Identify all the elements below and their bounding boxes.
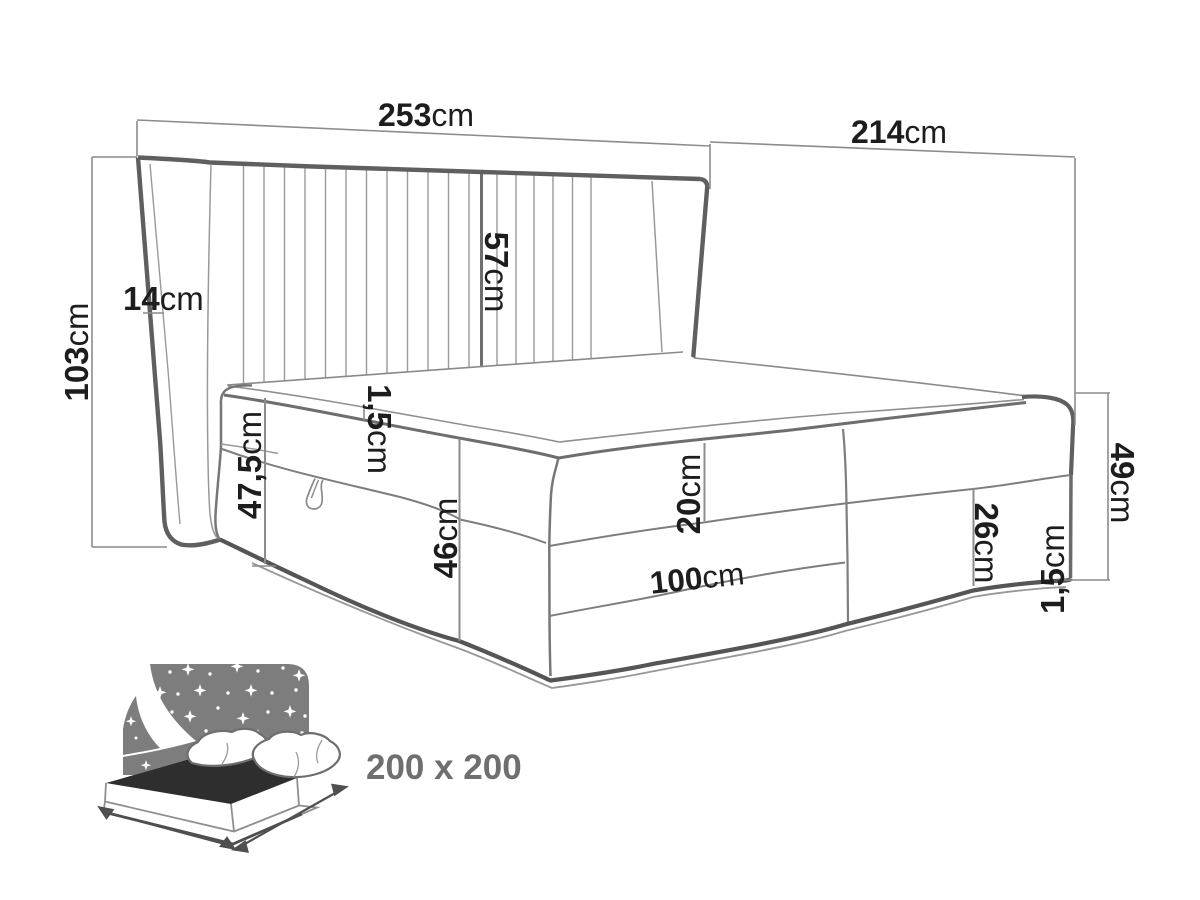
svg-text:20cm: 20cm — [670, 454, 707, 535]
svg-text:26cm: 26cm — [968, 503, 1005, 584]
svg-text:57cm: 57cm — [478, 232, 515, 313]
svg-text:49cm: 49cm — [1104, 443, 1141, 524]
svg-text:14cm: 14cm — [123, 280, 204, 317]
svg-text:253cm: 253cm — [378, 97, 474, 133]
svg-text:200 x 200: 200 x 200 — [366, 748, 522, 787]
svg-text:47,5cm: 47,5cm — [231, 411, 268, 519]
svg-text:46cm: 46cm — [427, 498, 464, 579]
svg-text:1,5cm: 1,5cm — [361, 384, 398, 474]
svg-text:214cm: 214cm — [851, 114, 947, 150]
svg-text:103cm: 103cm — [58, 302, 95, 401]
svg-text:1,5cm: 1,5cm — [1034, 524, 1071, 614]
